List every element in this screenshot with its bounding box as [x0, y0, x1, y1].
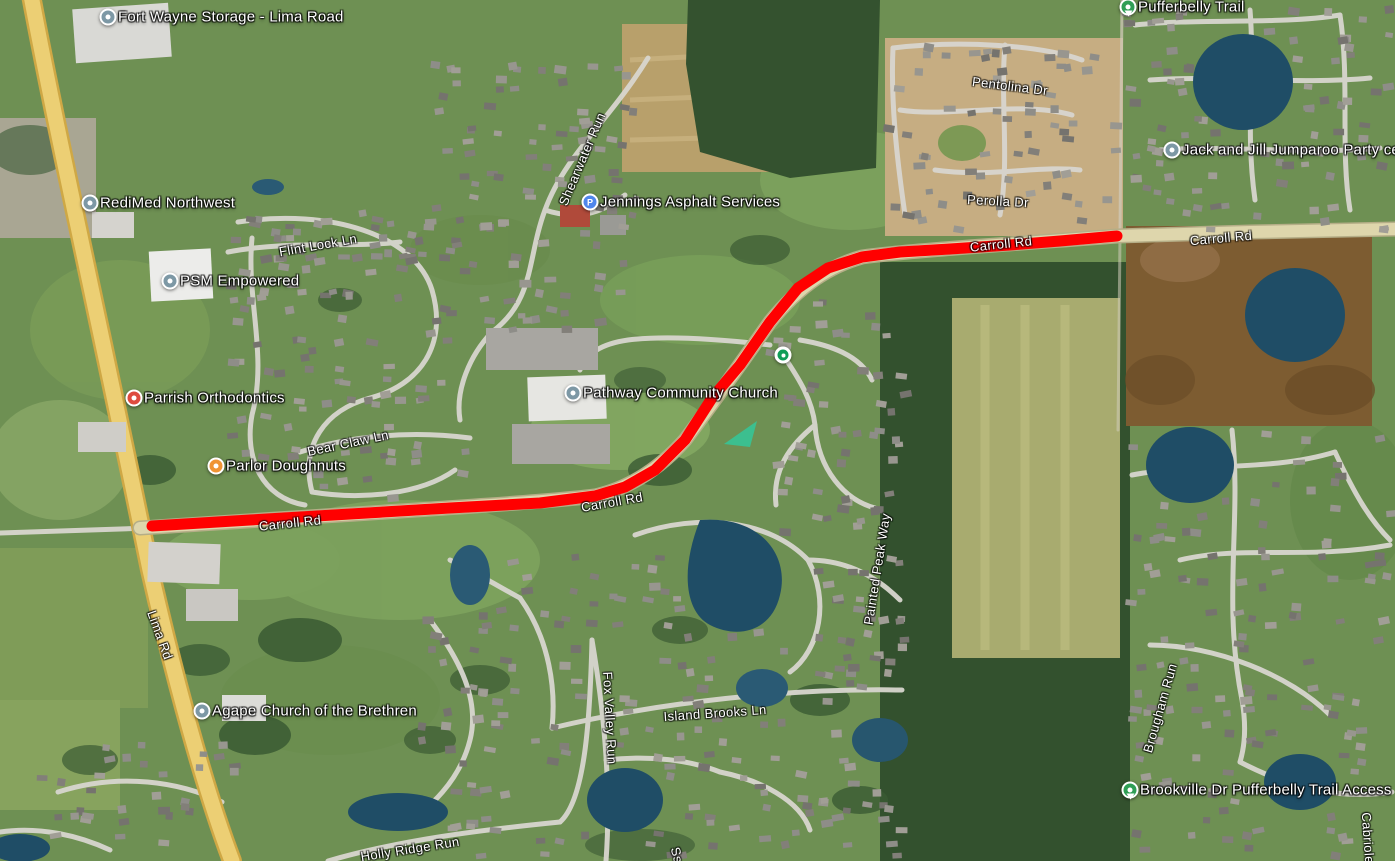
place-icon[interactable]	[162, 273, 179, 290]
restaurant-icon[interactable]	[208, 458, 225, 475]
poi-label[interactable]: Parrish Orthodontics	[144, 390, 285, 407]
field-in-forest	[952, 298, 1120, 658]
poi-label[interactable]: Jack and Jill Jumparoo Party central	[1182, 142, 1395, 159]
place-icon[interactable]	[565, 385, 582, 402]
place-icon[interactable]	[194, 703, 211, 720]
poi-label[interactable]: Jennings Asphalt Services	[600, 194, 780, 211]
poi-label[interactable]: Agape Church of the Brethren	[212, 703, 417, 720]
poi-label[interactable]: RediMed Northwest	[100, 195, 235, 212]
place-icon[interactable]	[1164, 142, 1181, 159]
p-badge-icon[interactable]: P	[582, 194, 599, 211]
poi-label[interactable]: Fort Wayne Storage - Lima Road	[118, 9, 344, 26]
satellite-imagery	[0, 0, 1395, 861]
medical-icon[interactable]	[126, 390, 143, 407]
poi-label[interactable]: PSM Empowered	[180, 273, 299, 290]
poi-label[interactable]: Pufferbelly Trail	[1138, 0, 1245, 16]
satellite-map-canvas[interactable]: Flint Lock LnShearwater RunBear Claw LnC…	[0, 0, 1395, 861]
place-icon[interactable]	[82, 195, 99, 212]
trail-icon[interactable]	[1122, 782, 1139, 799]
place-icon[interactable]	[100, 9, 117, 26]
poi-label[interactable]: Parlor Doughnuts	[226, 458, 346, 475]
poi-label[interactable]: Brookville Dr Pufferbelly Trail Access	[1140, 782, 1392, 799]
poi-label[interactable]: Pathway Community Church	[583, 385, 778, 402]
